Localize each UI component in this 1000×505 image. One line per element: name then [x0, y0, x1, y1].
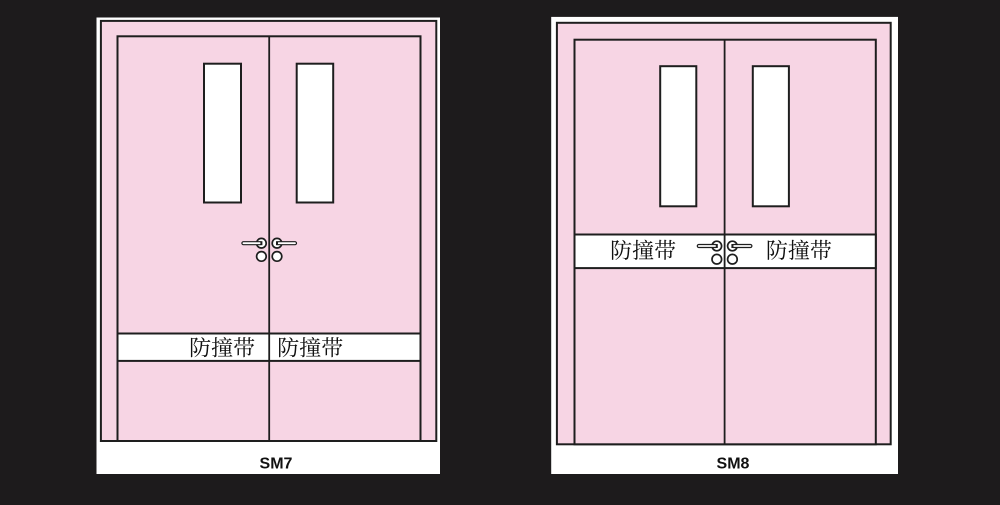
- svg-text:SM8: SM8: [717, 456, 750, 473]
- svg-text:SM7: SM7: [260, 456, 293, 473]
